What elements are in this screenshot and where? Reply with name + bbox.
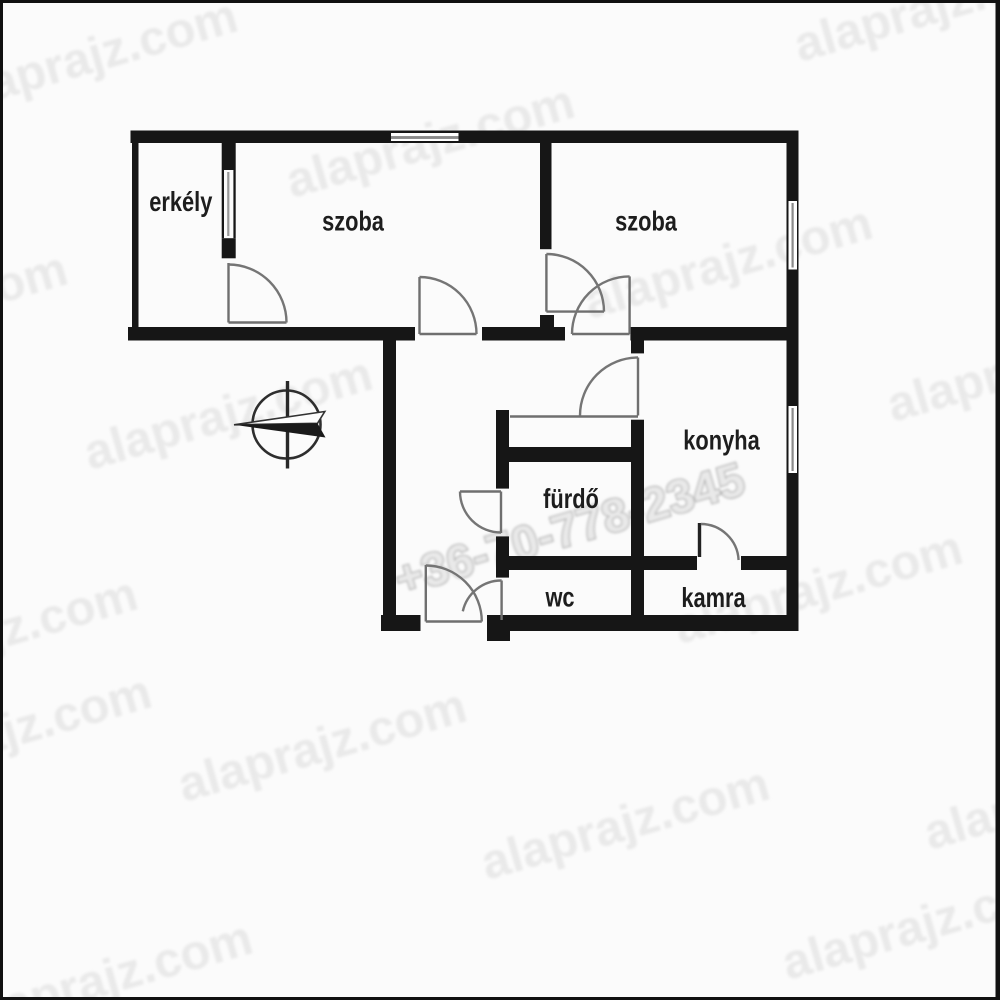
svg-text:erkély: erkély	[149, 186, 212, 217]
svg-text:fürdő: fürdő	[543, 483, 599, 514]
svg-text:szoba: szoba	[322, 206, 385, 237]
svg-text:szoba: szoba	[615, 206, 678, 237]
svg-text:kamra: kamra	[681, 582, 746, 613]
svg-text:konyha: konyha	[683, 425, 760, 456]
svg-text:wc: wc	[545, 582, 575, 613]
